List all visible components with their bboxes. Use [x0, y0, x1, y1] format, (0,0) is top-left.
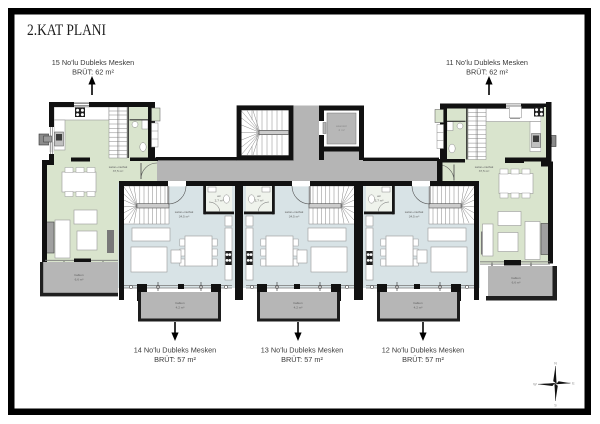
- svg-text:34,5 m²: 34,5 m²: [409, 215, 420, 219]
- svg-text:37,5 m²: 37,5 m²: [113, 169, 124, 173]
- svg-text:13 No'lu Dubleks Mesken: 13 No'lu Dubleks Mesken: [261, 346, 344, 355]
- svg-text:34,5 m²: 34,5 m²: [179, 215, 190, 219]
- svg-text:balkon: balkon: [293, 301, 302, 305]
- svg-text:balkon: balkon: [413, 301, 422, 305]
- svg-text:34,5 m²: 34,5 m²: [289, 215, 300, 219]
- svg-text:salon+mutfak: salon+mutfak: [175, 210, 194, 214]
- svg-text:2,7 m²: 2,7 m²: [255, 199, 264, 203]
- svg-text:BRÜT: 57 m²: BRÜT: 57 m²: [154, 355, 196, 364]
- svg-text:BRÜT: 62 m²: BRÜT: 62 m²: [72, 67, 114, 76]
- svg-text:2,7 m²: 2,7 m²: [375, 199, 384, 203]
- svg-text:2.KAT PLANI: 2.KAT PLANI: [27, 20, 106, 39]
- svg-text:BRÜT: 57 m²: BRÜT: 57 m²: [402, 355, 444, 364]
- svg-text:balkon: balkon: [74, 273, 83, 277]
- svg-text:37,5 m²: 37,5 m²: [479, 169, 490, 173]
- svg-text:wc: wc: [377, 194, 381, 198]
- svg-text:4,2 m²: 4,2 m²: [414, 306, 423, 310]
- svg-text:6,6 m²: 6,6 m²: [512, 281, 521, 285]
- svg-text:11 No'lu Dubleks Mesken: 11 No'lu Dubleks Mesken: [446, 58, 528, 67]
- svg-text:6,6 m²: 6,6 m²: [75, 278, 84, 282]
- svg-text:BRÜT: 62 m²: BRÜT: 62 m²: [466, 67, 508, 76]
- svg-text:salon+mutfak: salon+mutfak: [285, 210, 304, 214]
- svg-text:balkon: balkon: [511, 276, 520, 280]
- svg-text:4 m²: 4 m²: [338, 128, 344, 132]
- svg-text:wc: wc: [257, 194, 261, 198]
- svg-text:12 No'lu Dubleks Mesken: 12 No'lu Dubleks Mesken: [382, 346, 465, 355]
- svg-text:15 No'lu Dubleks Mesken: 15 No'lu Dubleks Mesken: [52, 58, 135, 67]
- svg-text:wc: wc: [217, 194, 221, 198]
- svg-text:4,2 m²: 4,2 m²: [176, 306, 185, 310]
- svg-text:2,7 m²: 2,7 m²: [215, 199, 224, 203]
- svg-text:N: N: [554, 362, 557, 366]
- svg-text:W: W: [533, 383, 537, 387]
- svg-text:4,2 m²: 4,2 m²: [294, 306, 303, 310]
- svg-text:balkon: balkon: [175, 301, 184, 305]
- svg-text:BRÜT: 57 m²: BRÜT: 57 m²: [281, 355, 323, 364]
- svg-text:14 No'lu Dubleks Mesken: 14 No'lu Dubleks Mesken: [134, 346, 217, 355]
- svg-text:salon+mutfak: salon+mutfak: [405, 210, 424, 214]
